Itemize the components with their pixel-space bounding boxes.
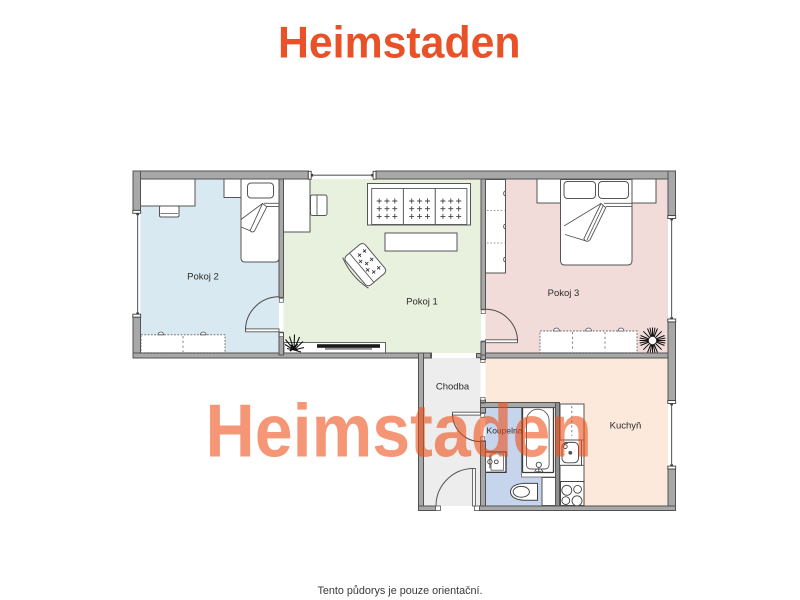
svg-text:Pokoj 1: Pokoj 1 (406, 297, 438, 308)
svg-text:Pokoj 3: Pokoj 3 (548, 288, 580, 299)
svg-text:Tento půdorys je pouze orienta: Tento půdorys je pouze orientační. (317, 585, 482, 597)
svg-text:Heimstaden: Heimstaden (278, 19, 521, 68)
svg-text:Heimstaden: Heimstaden (206, 389, 593, 473)
svg-text:Pokoj 2: Pokoj 2 (187, 272, 219, 283)
svg-text:Kuchyň: Kuchyň (610, 421, 642, 432)
